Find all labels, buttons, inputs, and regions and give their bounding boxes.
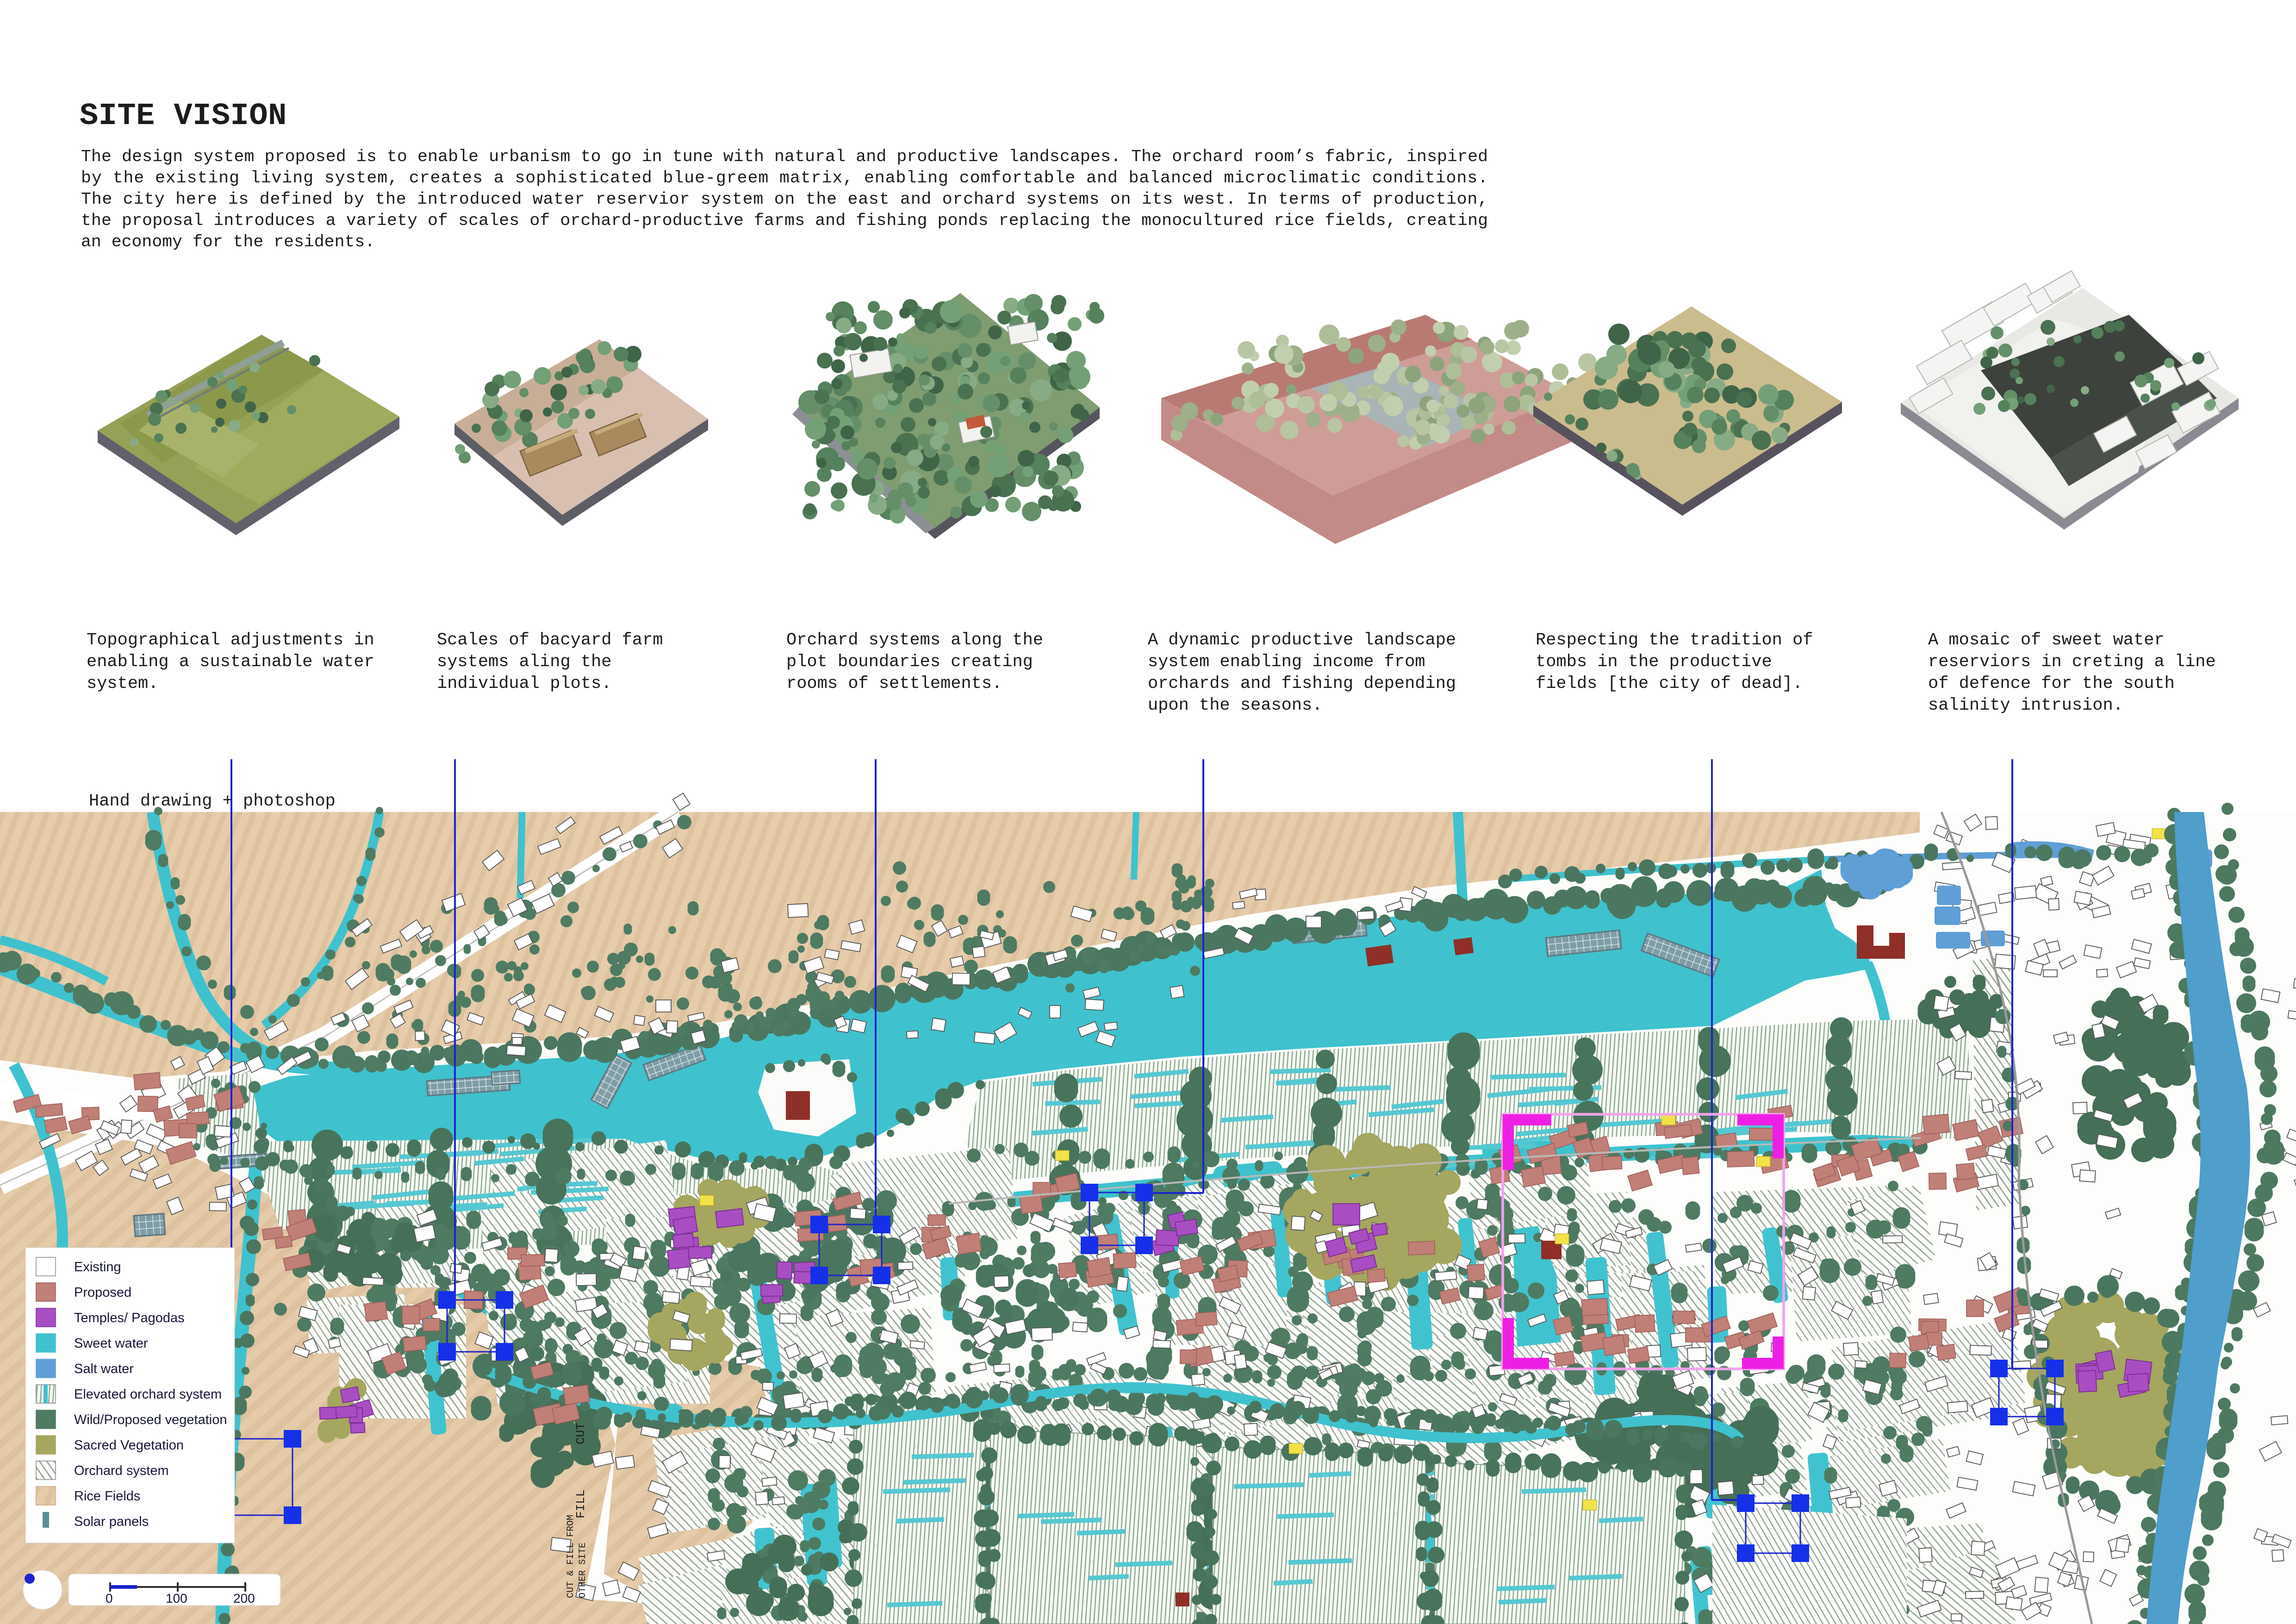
svg-text:OTHER SITE: OTHER SITE (578, 1543, 588, 1598)
svg-text:system.: system. (87, 674, 158, 693)
svg-text:Sweet water: Sweet water (74, 1336, 148, 1351)
svg-text:Scales of bacyard farm: Scales of bacyard farm (437, 631, 663, 650)
svg-text:100: 100 (166, 1591, 187, 1605)
svg-text:Proposed: Proposed (74, 1285, 131, 1300)
svg-text:Existing: Existing (74, 1260, 121, 1274)
svg-text:the proposal introduces a vari: the proposal introduces a variety of sca… (81, 211, 1488, 230)
svg-text:Rice Fields: Rice Fields (74, 1489, 140, 1504)
svg-text:The design system proposed is: The design system proposed is to enable … (81, 147, 1488, 166)
svg-text:Hand drawing + photoshop: Hand drawing + photoshop (89, 792, 336, 811)
svg-text:an economy for the residents.: an economy for the residents. (81, 232, 375, 251)
svg-text:Elevated orchard system: Elevated orchard system (74, 1387, 222, 1402)
svg-text:Temples/ Pagodas: Temples/ Pagodas (74, 1311, 185, 1325)
svg-text:upon the seasons.: upon the seasons. (1148, 696, 1322, 715)
svg-text:Solar panels: Solar panels (74, 1514, 149, 1529)
svg-text:The city here is defined by th: The city here is defined by the introduc… (81, 190, 1488, 209)
svg-text:200: 200 (233, 1591, 255, 1605)
svg-text:plot boundaries creating: plot boundaries creating (786, 652, 1033, 672)
svg-text:rooms of settlements.: rooms of settlements. (786, 674, 1002, 693)
svg-text:tombs in the productive: tombs in the productive (1536, 652, 1772, 672)
svg-text:individual plots.: individual plots. (437, 674, 611, 693)
svg-text:CUT: CUT (574, 1423, 588, 1444)
svg-text:SITE VISION: SITE VISION (80, 99, 287, 134)
svg-text:fields [the city of dead].: fields [the city of dead]. (1536, 674, 1803, 693)
svg-text:FILL: FILL (574, 1490, 588, 1518)
svg-text:salinity intrusion.: salinity intrusion. (1928, 696, 2123, 715)
svg-text:enabling a sustainable water: enabling a sustainable water (87, 652, 374, 672)
svg-text:Orchard system: Orchard system (74, 1463, 169, 1478)
svg-text:A dynamic productive landscape: A dynamic productive landscape (1148, 631, 1456, 650)
svg-text:CUT & FILL FROM: CUT & FILL FROM (566, 1515, 576, 1598)
svg-text:systems aling the: systems aling the (437, 652, 611, 672)
svg-text:Orchard systems along the: Orchard systems along the (786, 631, 1043, 650)
svg-text:Sacred Vegetation: Sacred Vegetation (74, 1438, 184, 1453)
svg-text:Respecting the tradition of: Respecting the tradition of (1536, 631, 1813, 650)
svg-text:system enabling income from: system enabling income from (1148, 652, 1425, 672)
svg-text:reserviors in creting a line: reserviors in creting a line (1928, 652, 2216, 672)
svg-text:Salt water: Salt water (74, 1362, 134, 1376)
svg-text:orchards and fishing depending: orchards and fishing depending (1148, 674, 1456, 693)
svg-text:Topographical adjustments in: Topographical adjustments in (87, 631, 374, 650)
svg-text:of defence for the south: of defence for the south (1928, 674, 2175, 693)
svg-text:0: 0 (106, 1591, 113, 1605)
svg-text:by the existing living system,: by the existing living system, creates a… (81, 169, 1488, 187)
svg-text:Wild/Proposed vegetation: Wild/Proposed vegetation (74, 1412, 227, 1427)
svg-text:A mosaic of sweet water: A mosaic of sweet water (1928, 631, 2165, 650)
